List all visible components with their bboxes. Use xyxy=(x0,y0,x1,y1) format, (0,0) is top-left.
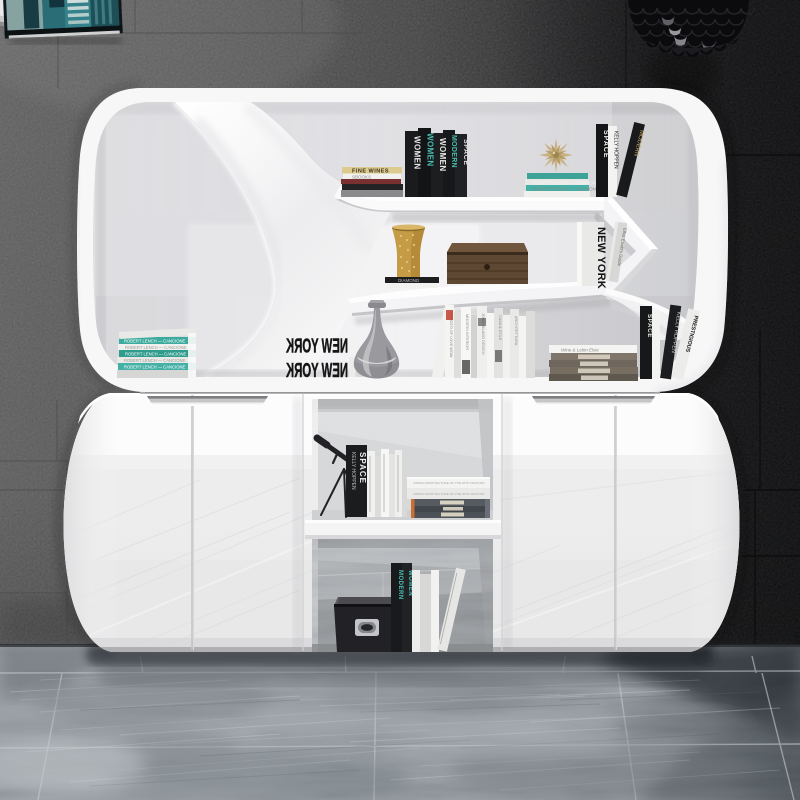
svg-text:ROBERT LENCH — CANCIONE: ROBERT LENCH — CANCIONE xyxy=(533,187,599,192)
svg-text:KELLY HOPPEN: KELLY HOPPEN xyxy=(350,452,356,490)
svg-text:SPACE: SPACE xyxy=(462,139,469,166)
svg-text:MODERN INTERIOR: MODERN INTERIOR xyxy=(465,314,469,350)
svg-text:ROBERT LENCH — CANCIONE: ROBERT LENCH — CANCIONE xyxy=(124,365,185,370)
svg-text:ROBERT LENCH — CANCIONE: ROBERT LENCH — CANCIONE xyxy=(124,339,185,344)
svg-text:NEW YORK: NEW YORK xyxy=(286,360,348,382)
svg-text:ROBERT LENCH — CANCIONE: ROBERT LENCH — CANCIONE xyxy=(125,352,186,357)
svg-text:WOMEN: WOMEN xyxy=(413,136,422,170)
svg-text:URBAN ARCHITECTURE OF THE 20TH: URBAN ARCHITECTURE OF THE 20TH CENTURY xyxy=(413,492,485,496)
svg-text:Wine & Lebin Elsie: Wine & Lebin Elsie xyxy=(561,348,599,353)
svg-text:SPACE: SPACE xyxy=(602,130,609,159)
svg-text:WOMEN: WOMEN xyxy=(438,138,447,172)
svg-text:URBAN ARCHITECTURE OF THE 20TH: URBAN ARCHITECTURE OF THE 20TH CENTURY xyxy=(413,481,485,485)
svg-text:WOMEN: WOMEN xyxy=(426,133,435,167)
svg-text:KELLY HOPPEN: KELLY HOPPEN xyxy=(613,131,619,169)
svg-text:SPACE: SPACE xyxy=(646,314,652,338)
svg-text:ROBERT LENCH — CANCIONE: ROBERT LENCH — CANCIONE xyxy=(125,345,186,350)
svg-text:NEW YORK: NEW YORK xyxy=(286,336,348,358)
svg-text:SBOOKS: SBOOKS xyxy=(352,174,371,179)
svg-text:MODERN: MODERN xyxy=(397,570,403,600)
svg-text:NEW YORK: NEW YORK xyxy=(595,227,607,289)
svg-text:SPACE: SPACE xyxy=(358,452,367,484)
svg-text:MODERN: MODERN xyxy=(450,135,457,168)
svg-text:ARCHITETTURA: ARCHITETTURA xyxy=(514,316,518,346)
svg-text:ROBERT LENCH — CANCIONE: ROBERT LENCH — CANCIONE xyxy=(124,358,185,363)
svg-text:ROBERT LENCH — CANCIONE: ROBERT LENCH — CANCIONE xyxy=(533,181,599,186)
svg-text:DIAMOND: DIAMOND xyxy=(398,278,420,283)
svg-text:CASA & STILE: CASA & STILE xyxy=(498,315,502,341)
